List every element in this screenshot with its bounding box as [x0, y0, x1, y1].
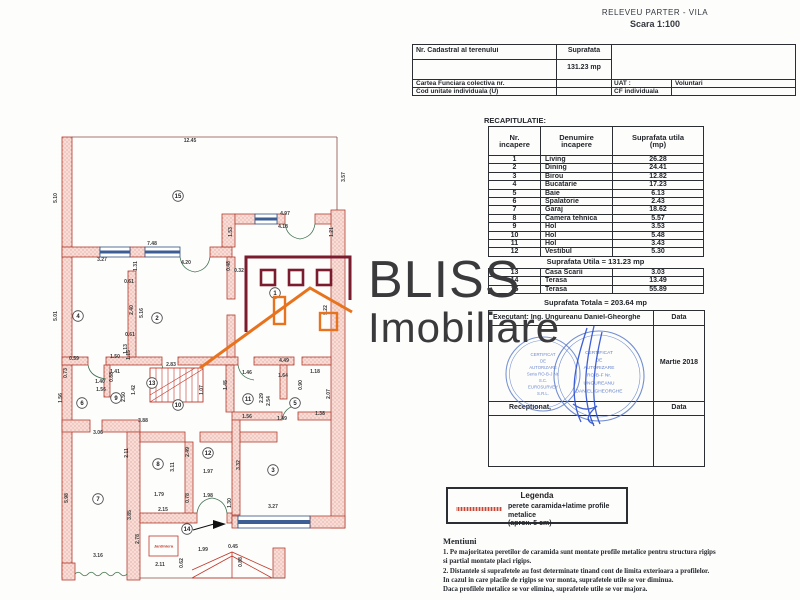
wall-segment: [140, 513, 197, 523]
dimension-label: 0.90: [298, 380, 304, 390]
table-cell: 18.62: [613, 206, 704, 214]
title-block: RELEVEU PARTER - VILA Scara 1:100: [540, 8, 770, 29]
document-title: RELEVEU PARTER - VILA: [540, 8, 770, 17]
svg-text:CERTIFICAT: CERTIFICAT: [531, 352, 556, 357]
table-cell: 5: [489, 189, 541, 197]
table-cell: 2.43: [613, 198, 704, 206]
uat-value: Voluntari: [675, 80, 785, 87]
wall-segment: [235, 214, 255, 224]
room-number: 6: [77, 398, 88, 409]
door-arc: [285, 224, 315, 239]
dimension-label: 1.45: [223, 380, 229, 390]
table-cell: 2: [489, 164, 541, 172]
dimension-label: 2.40: [129, 305, 135, 315]
table-cell: 1: [489, 156, 541, 164]
dimension-label: 0.88: [109, 372, 115, 382]
dimension-label: 2.78: [135, 534, 141, 544]
dimension-label: 4.97: [280, 211, 290, 217]
room-number: 10: [173, 400, 184, 411]
table-cell: Birou: [541, 172, 613, 180]
suprafata-utila-line: Suprafata Utila = 131.23 mp: [488, 257, 703, 266]
svg-text:DE: DE: [540, 359, 546, 364]
dimension-label: 1.40: [95, 379, 105, 385]
dimension-label: 0.88: [238, 557, 244, 567]
room-number: 2: [152, 313, 163, 324]
executant-label: Executant: Ing. Ungureanu Daniel-Gheorgh…: [493, 314, 651, 321]
table-cell: Living: [541, 156, 613, 164]
table-row: 14Terasa13.49: [489, 277, 704, 285]
dimension-label: 3.27: [97, 257, 107, 263]
table-line: [611, 45, 612, 95]
dimension-label: 1.56: [96, 387, 106, 393]
dimension-label: 2.11: [124, 448, 130, 458]
dimension-label: 3.57: [341, 172, 347, 182]
table-cell: Camera tehnica: [541, 214, 613, 222]
dimension-label: 1.21: [329, 227, 335, 237]
dimension-label: 1.56: [242, 414, 252, 420]
suprafata-label: Suprafata: [558, 47, 610, 54]
north-arrow-icon: [193, 520, 226, 530]
table-cell: 10: [489, 231, 541, 239]
table-cell: 24.41: [613, 164, 704, 172]
svg-text:EUROSURVEY: EUROSURVEY: [528, 385, 558, 390]
legend-box: Legenda perete caramida+latime profile m…: [446, 487, 628, 524]
mentiuni-line: In cazul in care placile de rigips se vo…: [443, 576, 797, 585]
svg-text:10: 10: [175, 403, 182, 409]
dimension-label: 3.88: [138, 418, 148, 424]
dimension-label: 4.18: [278, 224, 288, 230]
table-cell: Hol: [541, 240, 613, 248]
carte-funciara-label: Cartea Funciara colectiva nr.: [416, 80, 554, 87]
room-number: 5: [290, 398, 301, 409]
wall-segment: [310, 516, 345, 528]
dimension-label: 2.49: [185, 447, 191, 457]
wall-segment: [315, 214, 331, 224]
wall-segment: [232, 412, 282, 420]
jardiniera-box: Jardiniera: [149, 536, 178, 556]
wall-segment: [227, 513, 232, 523]
dimension-label: 12.45: [184, 138, 197, 144]
fence-wavy-line: [75, 572, 127, 576]
table-row: 12Vestibul5.30: [489, 248, 704, 256]
cf-individuala-label: CF individuala: [614, 88, 684, 95]
table-row: 2Dining24.41: [489, 164, 704, 172]
table-cell: Spalatorie: [541, 198, 613, 206]
dimension-label: 3.27: [268, 504, 278, 510]
room-number: 8: [153, 459, 164, 470]
dimension-label: 0.73: [63, 368, 69, 378]
table-cell: Dining: [541, 164, 613, 172]
mentiuni-line: Daca profilele metalice se vor elimina, …: [443, 585, 797, 594]
table-cell: 6.13: [613, 189, 704, 197]
stairs: [150, 368, 203, 402]
table-cell: 55.89: [613, 285, 704, 293]
dimension-label: 1.31: [133, 261, 139, 271]
window-icon: [100, 247, 130, 257]
dimension-label: 3.85: [127, 510, 133, 520]
table-cell: 6: [489, 198, 541, 206]
table-row: 3Birou12.82: [489, 172, 704, 180]
dimension-label: 0.61: [124, 279, 134, 285]
table-cell: 3.43: [613, 240, 704, 248]
table-row: 6Spalatorie2.43: [489, 198, 704, 206]
wall-segment: [62, 563, 75, 580]
recap-body: 1Living26.282Dining24.413Birou12.824Buca…: [489, 156, 704, 257]
dimension-label: 3.16: [93, 553, 103, 559]
recap-table: Nr. incapere Denumire incapere Suprafata…: [488, 126, 704, 257]
dimension-label: 5.01: [53, 311, 59, 321]
table-cell: Hol: [541, 223, 613, 231]
svg-text:14: 14: [184, 527, 191, 533]
wall-segment: [273, 548, 285, 578]
table-line: [556, 45, 557, 95]
dimension-label: 1.07: [199, 385, 205, 395]
entry-steps: [192, 552, 272, 578]
svg-text:15: 15: [175, 194, 182, 200]
table-cell: 8: [489, 214, 541, 222]
table-cell: Terasa: [541, 277, 613, 285]
document-scale: Scara 1:100: [540, 19, 770, 29]
table-cell: 5.30: [613, 248, 704, 256]
room-number: 12: [203, 448, 214, 459]
dimension-label: 1.30: [227, 498, 233, 508]
door-arc: [197, 498, 227, 513]
door-arc: [88, 365, 106, 379]
table-row: 15Terasa55.89: [489, 285, 704, 293]
dimension-label: 1.42: [131, 385, 137, 395]
room-number: 11: [243, 394, 254, 405]
wall-segment: [232, 516, 238, 528]
table-cell: 26.28: [613, 156, 704, 164]
table-cell: 3.03: [613, 269, 704, 277]
room-number: 14: [182, 524, 193, 535]
table-cell: 5.57: [613, 214, 704, 222]
room-number: 7: [93, 494, 104, 505]
table-row: 8Camera tehnica5.57: [489, 214, 704, 222]
svg-text:12: 12: [205, 451, 212, 457]
svg-text:UNGUREANU: UNGUREANU: [584, 381, 615, 387]
col-header-nr: Nr. incapere: [489, 127, 541, 156]
table-row: 9Hol3.53: [489, 223, 704, 231]
dimension-label: 7.48: [147, 241, 157, 247]
window-icon: [255, 214, 277, 224]
mentiuni-line: 1. Pe majoritatea peretilor de caramida …: [443, 548, 797, 557]
dimension-label: 1.53: [228, 227, 234, 237]
data-label: Data: [654, 314, 704, 321]
table-row: 10Hol5.48: [489, 231, 704, 239]
room-number: 15: [173, 191, 184, 202]
window-icon: [238, 516, 310, 528]
dimension-label: 2.15: [158, 507, 168, 513]
table-cell: Vestibul: [541, 248, 613, 256]
dimension-label: 5.16: [139, 308, 145, 318]
table-cell: 12: [489, 248, 541, 256]
table-row: 1Living26.28: [489, 156, 704, 164]
dimension-label: 1.99: [198, 547, 208, 553]
table-cell: 11: [489, 240, 541, 248]
dimension-label: 1.50: [110, 354, 120, 360]
dimension-label: 1.97: [203, 469, 213, 475]
table-cell: Baie: [541, 189, 613, 197]
cadastral-table: Nr. Cadastral al terenului Suprafata 131…: [412, 44, 796, 96]
dimension-label: 2.83: [166, 362, 176, 368]
dimension-label: 1.56: [58, 393, 64, 403]
mentiuni-lines: 1. Pe majoritatea peretilor de caramida …: [443, 548, 797, 594]
nr-cadastral-label: Nr. Cadastral al terenului: [416, 47, 554, 54]
table-row: 13Casa Scarii3.03: [489, 269, 704, 277]
jardiniera-label: Jardiniera: [154, 544, 174, 549]
room-number: 9: [111, 393, 122, 404]
table-cell: 3: [489, 172, 541, 180]
bliss-logo-icon: [190, 248, 360, 373]
table-cell: 7: [489, 206, 541, 214]
dimension-label: 0.61: [125, 332, 135, 338]
mentiuni-line: si partial montate placi rigips.: [443, 557, 797, 566]
room-number: 4: [73, 311, 84, 322]
table-row: 5Baie6.13: [489, 189, 704, 197]
uat-label: UAT :: [614, 80, 668, 87]
table-cell: Bucatarie: [541, 181, 613, 189]
extra-body: 13Casa Scarii3.0314Terasa13.4915Terasa55…: [489, 269, 704, 294]
table-cell: 13.49: [613, 277, 704, 285]
table-cell: 12.82: [613, 172, 704, 180]
dimension-label: 0.62: [179, 558, 185, 568]
svg-text:RO-B-F Nr.: RO-B-F Nr.: [587, 373, 611, 379]
col-header-suprafata: Suprafata utila (mp): [613, 127, 704, 156]
table-cell: 5.48: [613, 231, 704, 239]
table-cell: 4: [489, 181, 541, 189]
table-row: 7Garaj18.62: [489, 206, 704, 214]
table-row: 4Bucatarie17.23: [489, 181, 704, 189]
recap-header-row: Nr. incapere Denumire incapere Suprafata…: [489, 127, 704, 156]
dimension-label: 1.98: [203, 493, 213, 499]
dimension-label: 1.49: [277, 416, 287, 422]
dimension-label: 2.50: [121, 392, 127, 402]
dimension-label: 2.11: [155, 562, 165, 568]
table-row: 11Hol3.43: [489, 240, 704, 248]
svg-text:AUTORIZARE: AUTORIZARE: [584, 365, 615, 371]
wall-segment: [130, 247, 145, 257]
table-cell: Casa Scarii: [541, 269, 613, 277]
table-cell: Terasa: [541, 285, 613, 293]
window-icon: [145, 247, 180, 257]
wall-segment: [102, 420, 140, 432]
dimension-label: 3.32: [236, 460, 242, 470]
col-header-denumire: Denumire incapere: [541, 127, 613, 156]
svg-text:13: 13: [149, 381, 156, 387]
dimension-label: 3.06: [93, 430, 103, 436]
table-cell: 3.53: [613, 223, 704, 231]
svg-text:AUTORIZARE: AUTORIZARE: [529, 365, 557, 370]
table-cell: Hol: [541, 231, 613, 239]
table-cell: 13: [489, 269, 541, 277]
wall-segment: [62, 247, 100, 257]
dimension-label: 3.11: [170, 462, 176, 472]
mentiuni-section: Mentiuni 1. Pe majoritatea peretilor de …: [443, 536, 797, 594]
recap-extra-table: 13Casa Scarii3.0314Terasa13.4915Terasa55…: [488, 268, 704, 294]
recap-title: RECAPITULATIE:: [484, 116, 604, 125]
mentiuni-title: Mentiuni: [443, 536, 797, 546]
dimension-label: 5.98: [64, 493, 70, 503]
svg-text:S.C.: S.C.: [539, 378, 547, 383]
dimension-label: 0.59: [69, 356, 79, 362]
wall-segment: [140, 432, 185, 442]
suprafata-value: 131.23 mp: [558, 64, 610, 71]
svg-text:DANIEL-GHEORGHE: DANIEL-GHEORGHE: [576, 389, 623, 395]
suprafata-totala-line: Suprafata Totala = 203.64 mp: [488, 298, 703, 307]
dimension-label: 0.78: [185, 493, 191, 503]
stamps-area: CERTIFICATDEAUTORIZARESeria RO-B-J Nr.S.…: [495, 322, 670, 430]
table-cell: 15: [489, 285, 541, 293]
dimension-label: 5.10: [53, 193, 59, 203]
table-cell: Garaj: [541, 206, 613, 214]
dimension-label: 0.45: [228, 544, 238, 550]
svg-text:S.R.L.: S.R.L.: [537, 391, 549, 396]
legend-item-text: perete caramida+latime profile metalice …: [508, 503, 626, 529]
dimension-label: 1.15: [126, 350, 132, 360]
legend-item-line1: perete caramida+latime profile metalice: [508, 503, 609, 519]
svg-text:11: 11: [245, 397, 252, 403]
dimension-label: 2.54: [266, 396, 272, 406]
dimension-label: 2.07: [326, 389, 332, 399]
table-cell: 9: [489, 223, 541, 231]
dimension-label: 1.38: [315, 411, 325, 417]
room-number: 13: [147, 378, 158, 389]
dimension-label: 2.29: [259, 393, 265, 403]
brick-wall-symbol: [456, 507, 502, 511]
document-page: RELEVEU PARTER - VILA Scara 1:100 Nr. Ca…: [0, 0, 800, 600]
legend-item-line2: (aprox. 5 cm): [508, 520, 552, 527]
dimension-label: 1.64: [278, 373, 288, 379]
table-cell: 17.23: [613, 181, 704, 189]
cod-unitate-label: Cod unitate individuala (U): [416, 88, 554, 95]
room-number: 3: [268, 465, 279, 476]
table-line: [413, 59, 611, 60]
wall-segment: [62, 420, 90, 432]
table-cell: 14: [489, 277, 541, 285]
legend-title: Legenda: [448, 491, 626, 500]
dimension-label: 1.79: [154, 492, 164, 498]
mentiuni-line: 2. Distantele si suprafetele au fost det…: [443, 567, 797, 576]
